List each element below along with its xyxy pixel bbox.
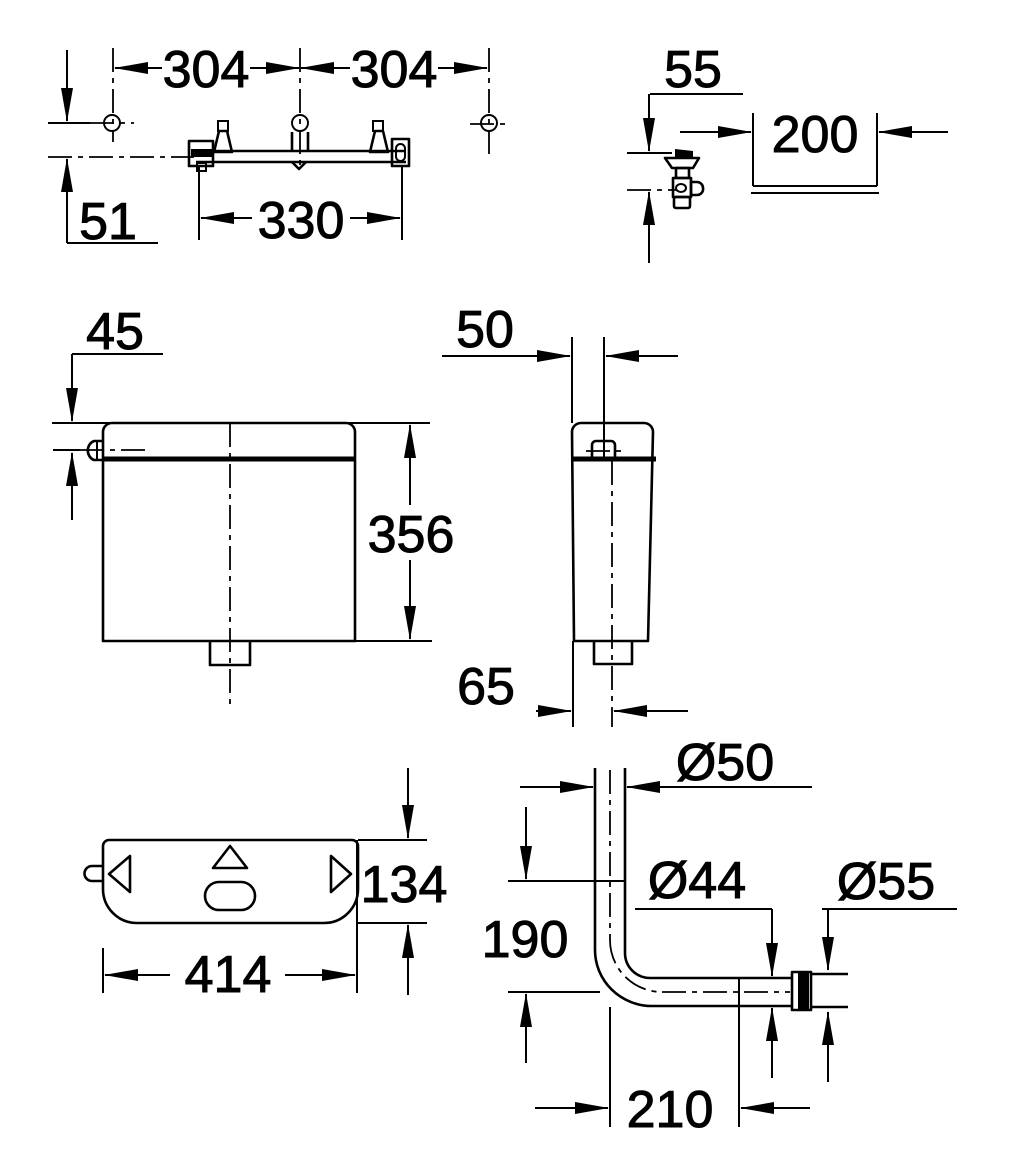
dim-label-hole-spacing-left: 304	[163, 41, 250, 99]
dim-label-pipe-od: Ø50	[676, 734, 774, 792]
pipe-connector-seal	[798, 973, 809, 1009]
dimension-drawing-canvas: 304 304 51 330 55 200	[0, 0, 1014, 1176]
dim-label-valve-offset: 55	[664, 41, 722, 99]
dim-label-lever-from-top: 45	[86, 303, 144, 361]
dim-label-vertical-leg: 190	[482, 911, 569, 969]
dim-label-connector-d: Ø55	[837, 853, 935, 911]
rail-left-clamp	[191, 149, 212, 157]
dim-label-outlet-from-front: 65	[457, 658, 515, 716]
drawing-background	[0, 0, 1014, 1176]
technical-drawing-page: 304 304 51 330 55 200	[0, 0, 1014, 1176]
dim-label-height: 356	[368, 506, 455, 564]
dim-label-depth: 134	[361, 856, 448, 914]
dim-label-width: 414	[185, 946, 272, 1004]
dim-label-pipe-d: Ø44	[648, 852, 746, 910]
dim-label-horizontal-leg: 210	[627, 1081, 714, 1139]
dim-label-rail-offset: 51	[79, 193, 137, 251]
dim-label-recess-width: 200	[772, 106, 859, 164]
dim-label-hole-spacing-right: 304	[351, 41, 438, 99]
dim-label-lever-from-front: 50	[456, 301, 514, 359]
dim-label-bracket-width: 330	[258, 192, 345, 250]
